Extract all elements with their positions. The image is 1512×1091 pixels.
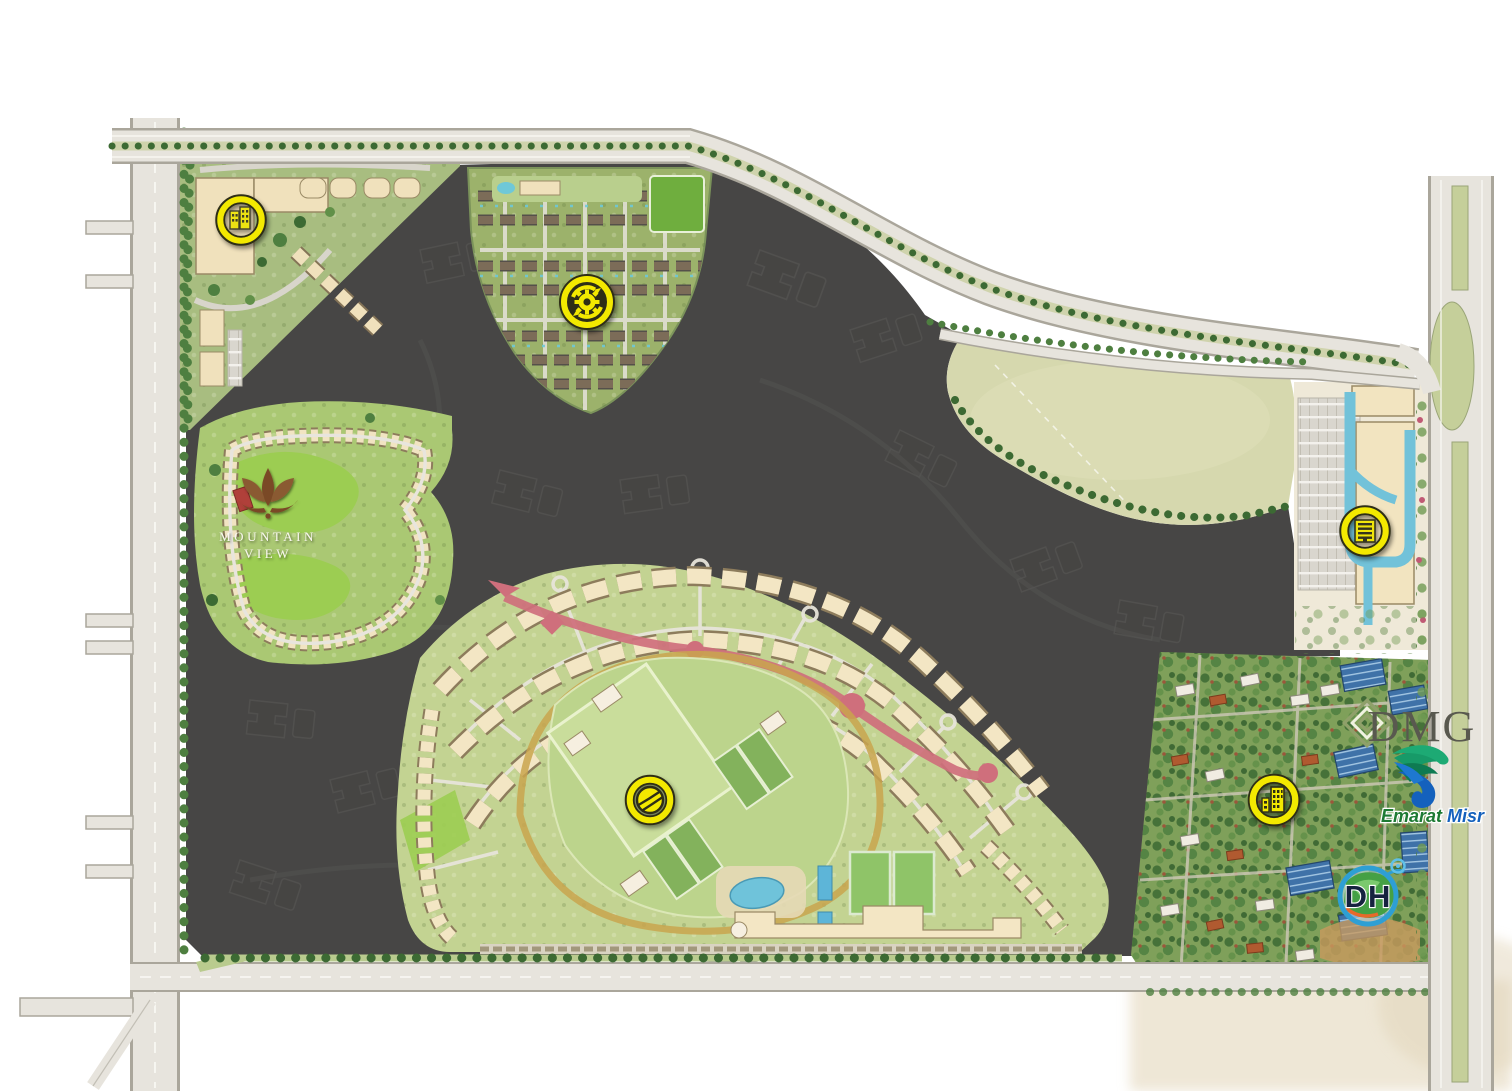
dmg-text: DMG [1368,702,1477,751]
mountain-view-line1: MOUNTAIN [219,529,317,544]
gear-arrows-icon [573,287,601,317]
office-building-icon [1355,520,1375,542]
kids-pool [818,912,832,925]
tennis-ball-icon [637,787,663,813]
lap-pool [818,866,832,900]
dh-text: DH [1345,879,1392,914]
master-plan-map: MOUNTAIN VIEW DMG EmaratMisr DH [0,0,1512,1091]
master-plan-page: MOUNTAIN VIEW DMG EmaratMisr DH [0,0,1512,1091]
sports-field [894,852,934,914]
emarat-text: EmaratMisr [1381,806,1485,826]
faded-trees [1295,606,1430,654]
map-marker-sports[interactable] [626,776,674,824]
buildings-icon [230,207,250,229]
map-marker-construction[interactable] [559,274,615,330]
map-marker-apartments[interactable] [1249,775,1299,825]
map-marker-offices[interactable] [1341,507,1390,556]
sports-field [850,852,890,914]
map-marker-retail[interactable] [217,196,266,245]
sports-field [650,176,704,232]
mountain-view-line2: VIEW [244,546,292,561]
office-site [1294,382,1436,654]
